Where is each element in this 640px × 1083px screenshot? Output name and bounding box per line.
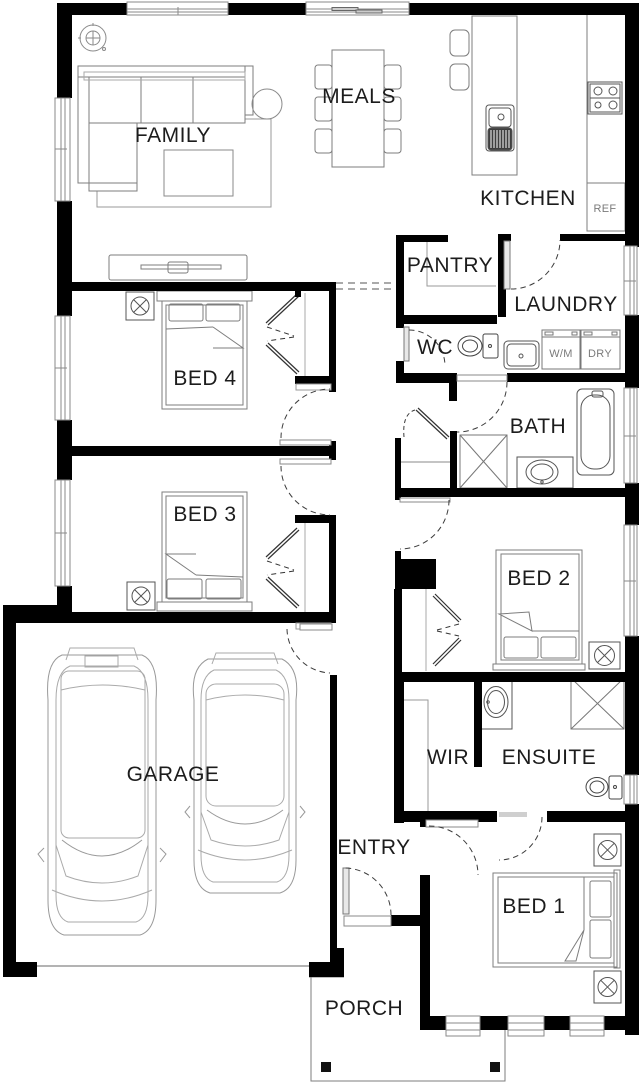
svg-text:BATH: BATH — [510, 415, 566, 438]
svg-text:MEALS: MEALS — [322, 85, 396, 108]
svg-text:ENSUITE: ENSUITE — [502, 746, 597, 769]
svg-text:PORCH: PORCH — [325, 997, 403, 1020]
svg-text:LAUNDRY: LAUNDRY — [514, 293, 617, 316]
svg-text:BED 1: BED 1 — [502, 895, 565, 918]
svg-text:GARAGE: GARAGE — [127, 763, 220, 786]
svg-text:BED 4: BED 4 — [173, 367, 236, 390]
svg-text:WIR: WIR — [427, 746, 469, 769]
svg-text:WC: WC — [417, 336, 453, 359]
svg-text:W/M: W/M — [549, 348, 573, 360]
svg-text:REF: REF — [594, 203, 617, 215]
svg-text:ENTRY: ENTRY — [337, 836, 410, 859]
svg-text:FAMILY: FAMILY — [135, 124, 211, 147]
svg-text:DRY: DRY — [588, 348, 612, 360]
svg-text:BED 3: BED 3 — [173, 503, 236, 526]
svg-text:KITCHEN: KITCHEN — [480, 187, 576, 210]
svg-text:BED 2: BED 2 — [507, 567, 570, 590]
svg-text:PANTRY: PANTRY — [407, 254, 493, 277]
